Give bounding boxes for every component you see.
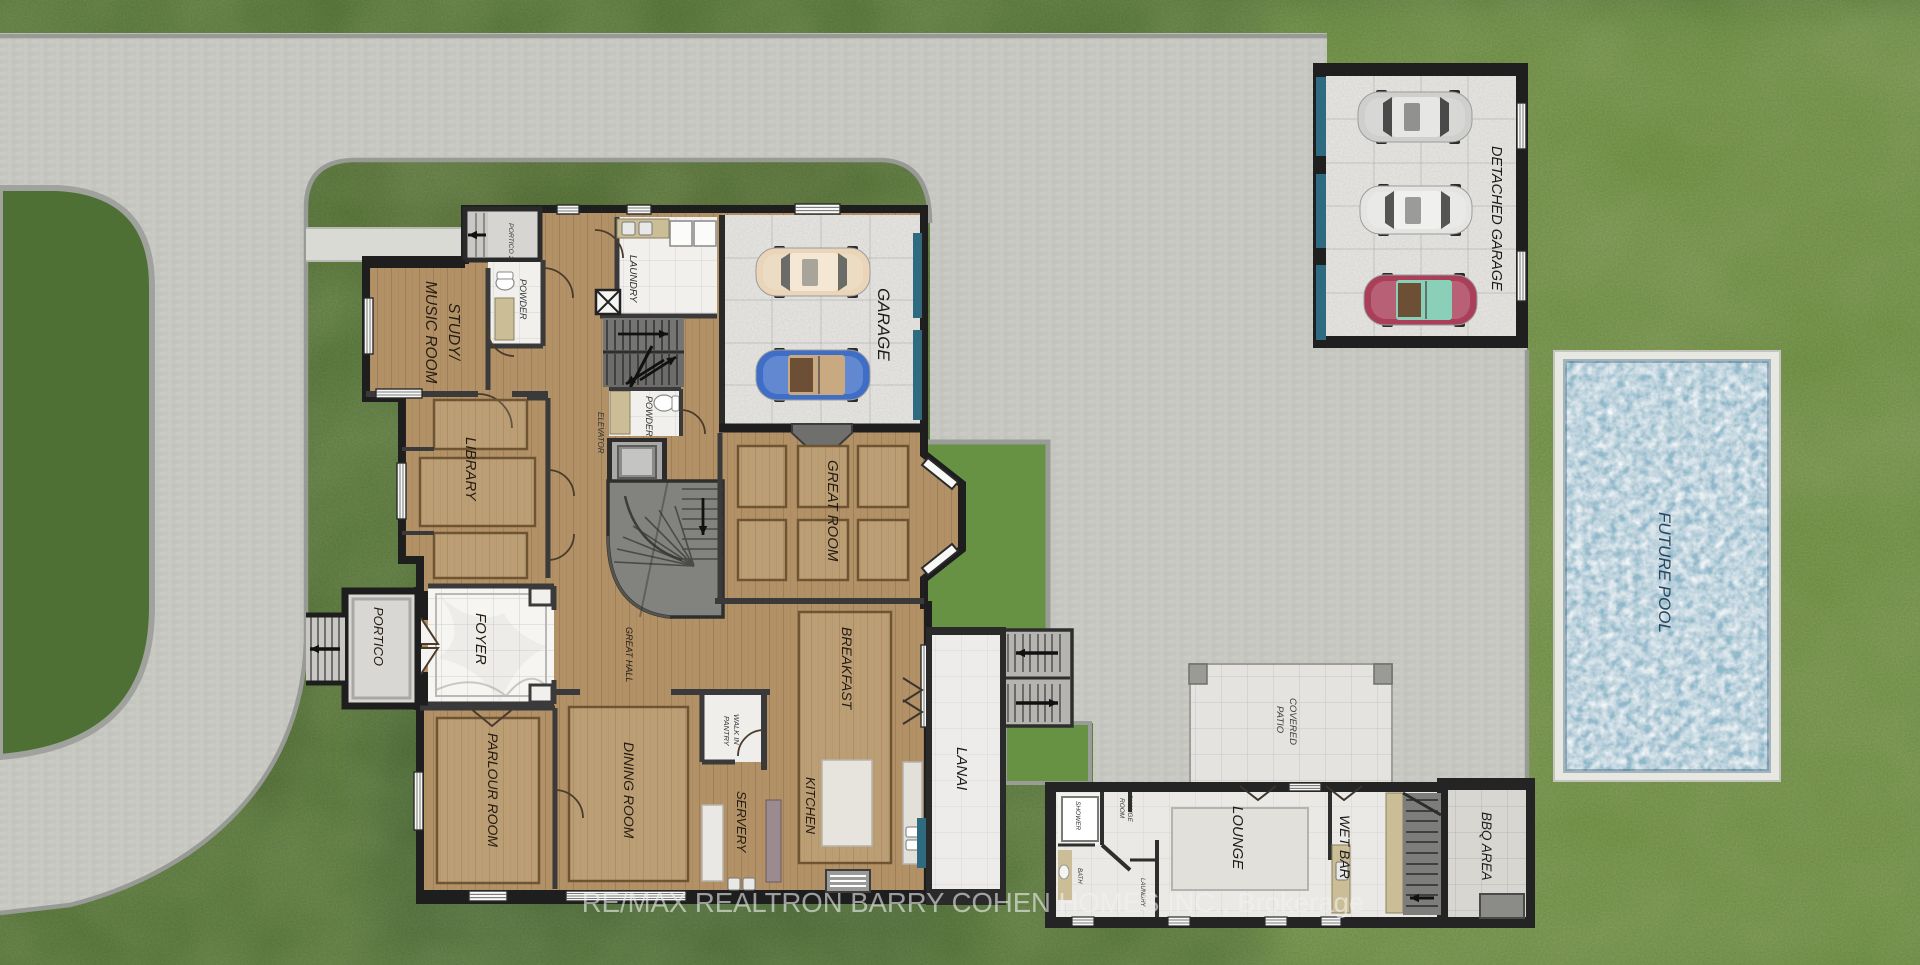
- svg-text:ELEVATOR: ELEVATOR: [596, 412, 605, 454]
- svg-text:PORTICO: PORTICO: [371, 607, 386, 666]
- svg-text:LOUNGE: LOUNGE: [1229, 806, 1246, 870]
- svg-text:LANAI: LANAI: [953, 747, 970, 790]
- svg-text:POWDER: POWDER: [644, 396, 654, 437]
- svg-text:KITCHEN: KITCHEN: [803, 777, 818, 835]
- svg-text:ROOM: ROOM: [1118, 798, 1125, 819]
- svg-text:DETACHED GARAGE: DETACHED GARAGE: [1488, 146, 1504, 291]
- svg-text:SHOWER: SHOWER: [1074, 801, 1081, 831]
- svg-text:PATIO: PATIO: [1274, 706, 1285, 734]
- svg-text:GARAGE: GARAGE: [874, 288, 893, 361]
- svg-text:RE/MAX REALTRON BARRY COHEN HO: RE/MAX REALTRON BARRY COHEN HOMES INC., …: [582, 887, 1364, 918]
- svg-text:BREAKFAST: BREAKFAST: [839, 627, 855, 711]
- svg-text:STUDY/: STUDY/: [445, 303, 462, 362]
- svg-text:MUSIC ROOM: MUSIC ROOM: [422, 281, 439, 384]
- svg-text:FOYER: FOYER: [472, 613, 489, 665]
- svg-text:PORTICO 2: PORTICO 2: [507, 223, 514, 260]
- svg-text:LAUNDRY: LAUNDRY: [627, 255, 638, 304]
- svg-text:COVERED: COVERED: [1287, 698, 1298, 745]
- svg-text:GREAT HALL: GREAT HALL: [624, 627, 634, 682]
- svg-text:BBQ AREA: BBQ AREA: [1479, 812, 1494, 881]
- svg-text:FUTURE POOL: FUTURE POOL: [1655, 512, 1674, 633]
- svg-text:PARLOUR ROOM: PARLOUR ROOM: [485, 733, 501, 847]
- svg-text:WALK IN: WALK IN: [732, 714, 741, 745]
- svg-text:DINING ROOM: DINING ROOM: [621, 742, 637, 839]
- svg-text:PANTRY: PANTRY: [722, 716, 731, 747]
- svg-text:BATH: BATH: [1076, 868, 1082, 884]
- svg-text:GREAT ROOM: GREAT ROOM: [824, 460, 841, 562]
- svg-text:POWDER: POWDER: [518, 279, 528, 320]
- svg-text:LIBRARY: LIBRARY: [462, 437, 479, 502]
- svg-text:WET BAR: WET BAR: [1337, 815, 1353, 879]
- svg-text:SERVERY: SERVERY: [734, 791, 749, 854]
